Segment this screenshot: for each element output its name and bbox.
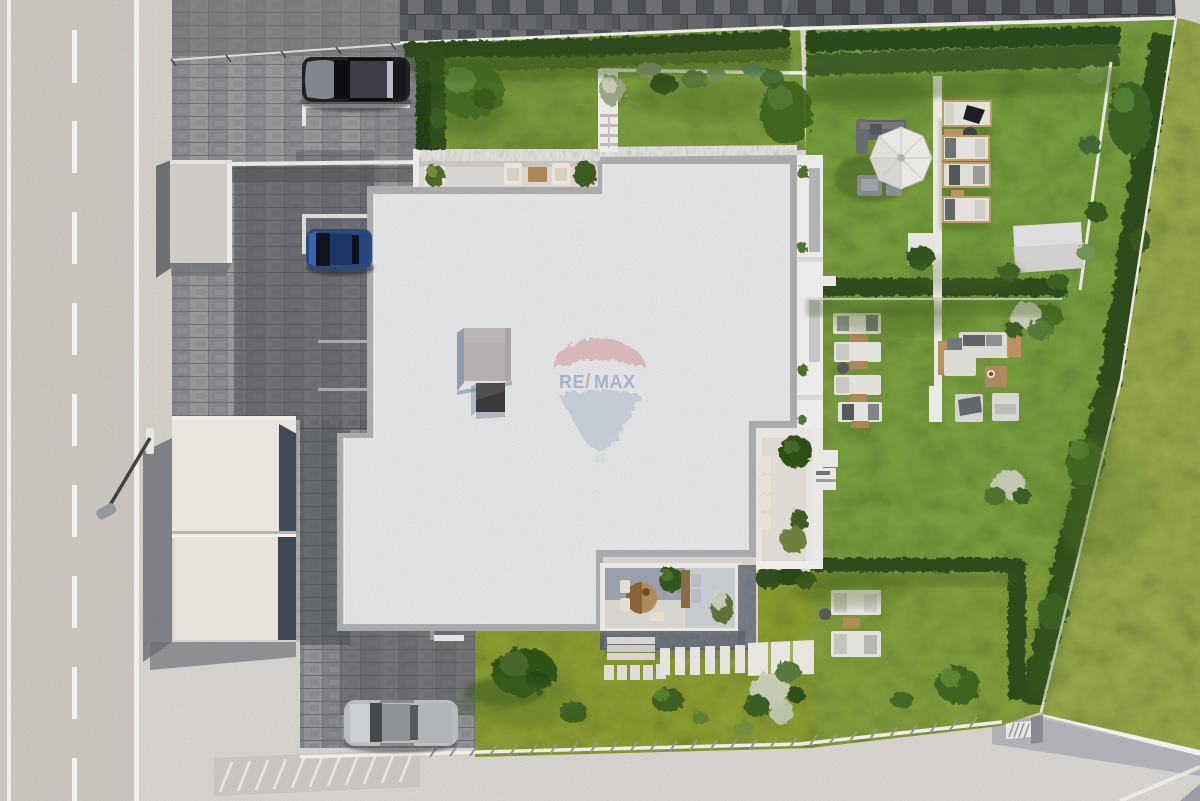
svg-text:/: /: [585, 371, 591, 393]
svg-text:RE: RE: [559, 372, 585, 392]
svg-text:MAX: MAX: [594, 372, 636, 392]
